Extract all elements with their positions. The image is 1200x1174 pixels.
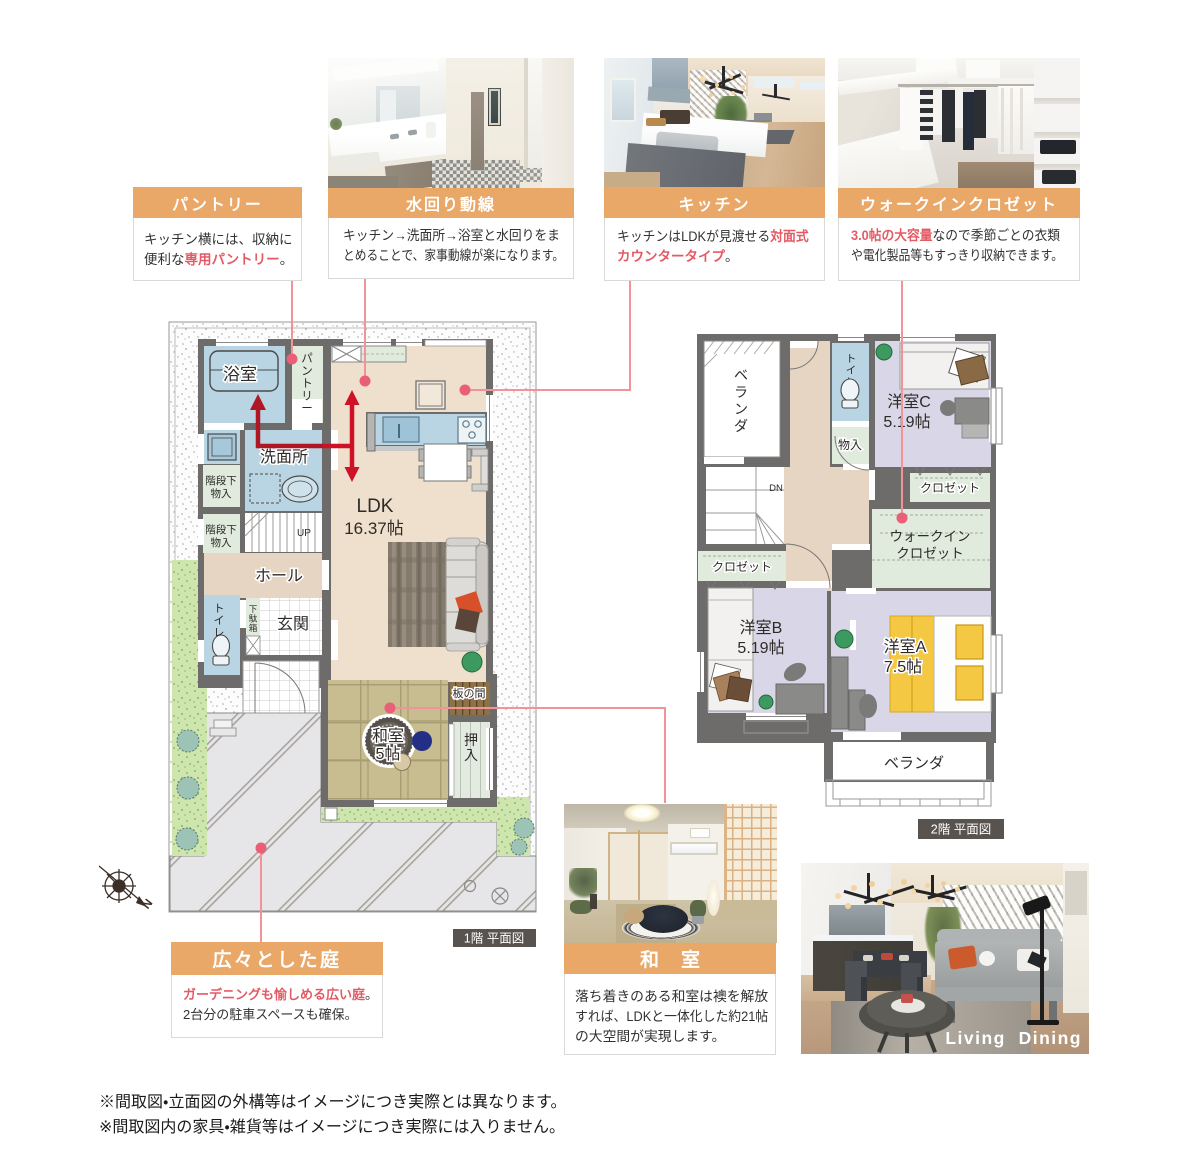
svg-text:パントリー: パントリー bbox=[301, 352, 313, 415]
svg-text:下駄箱: 下駄箱 bbox=[249, 604, 258, 633]
svg-text:N: N bbox=[139, 896, 155, 911]
svg-text:浴室: 浴室 bbox=[223, 365, 257, 384]
svg-text:板の間: 板の間 bbox=[453, 686, 486, 700]
svg-text:5帖: 5帖 bbox=[376, 745, 401, 763]
svg-text:LDK: LDK bbox=[357, 496, 394, 517]
svg-text:クロゼット: クロゼット bbox=[920, 481, 980, 495]
svg-text:UP: UP bbox=[297, 528, 311, 539]
svg-text:2階 平面図: 2階 平面図 bbox=[931, 823, 991, 837]
svg-text:物入: 物入 bbox=[211, 536, 232, 549]
svg-text:洋室B: 洋室B bbox=[740, 619, 783, 637]
svg-text:トイレ: トイレ bbox=[214, 603, 225, 639]
svg-text:1階 平面図: 1階 平面図 bbox=[464, 932, 524, 946]
svg-text:押入: 押入 bbox=[464, 732, 478, 763]
svg-text:洋室C: 洋室C bbox=[887, 393, 931, 411]
svg-text:クロゼット: クロゼット bbox=[712, 560, 772, 574]
svg-text:物入: 物入 bbox=[838, 438, 862, 452]
svg-text:16.37帖: 16.37帖 bbox=[344, 519, 404, 538]
svg-text:階段下: 階段下 bbox=[205, 474, 237, 487]
svg-text:ホール: ホール bbox=[255, 568, 303, 585]
svg-text:ウォークイン: ウォークイン bbox=[890, 529, 971, 544]
svg-text:玄関: 玄関 bbox=[277, 615, 309, 633]
svg-text:7.5帖: 7.5帖 bbox=[884, 658, 922, 676]
svg-text:洗面所: 洗面所 bbox=[260, 448, 308, 466]
svg-text:DN: DN bbox=[769, 483, 783, 494]
svg-text:ベランダ: ベランダ bbox=[884, 755, 944, 772]
svg-text:ベランダ: ベランダ bbox=[734, 367, 748, 434]
svg-text:物入: 物入 bbox=[211, 487, 232, 500]
svg-text:洋室A: 洋室A bbox=[884, 638, 927, 656]
svg-text:和室: 和室 bbox=[372, 727, 404, 745]
svg-text:5.19帖: 5.19帖 bbox=[737, 639, 784, 657]
svg-text:クロゼット: クロゼット bbox=[896, 546, 964, 561]
svg-text:5.19帖: 5.19帖 bbox=[883, 413, 930, 431]
svg-text:階段下: 階段下 bbox=[205, 523, 237, 536]
